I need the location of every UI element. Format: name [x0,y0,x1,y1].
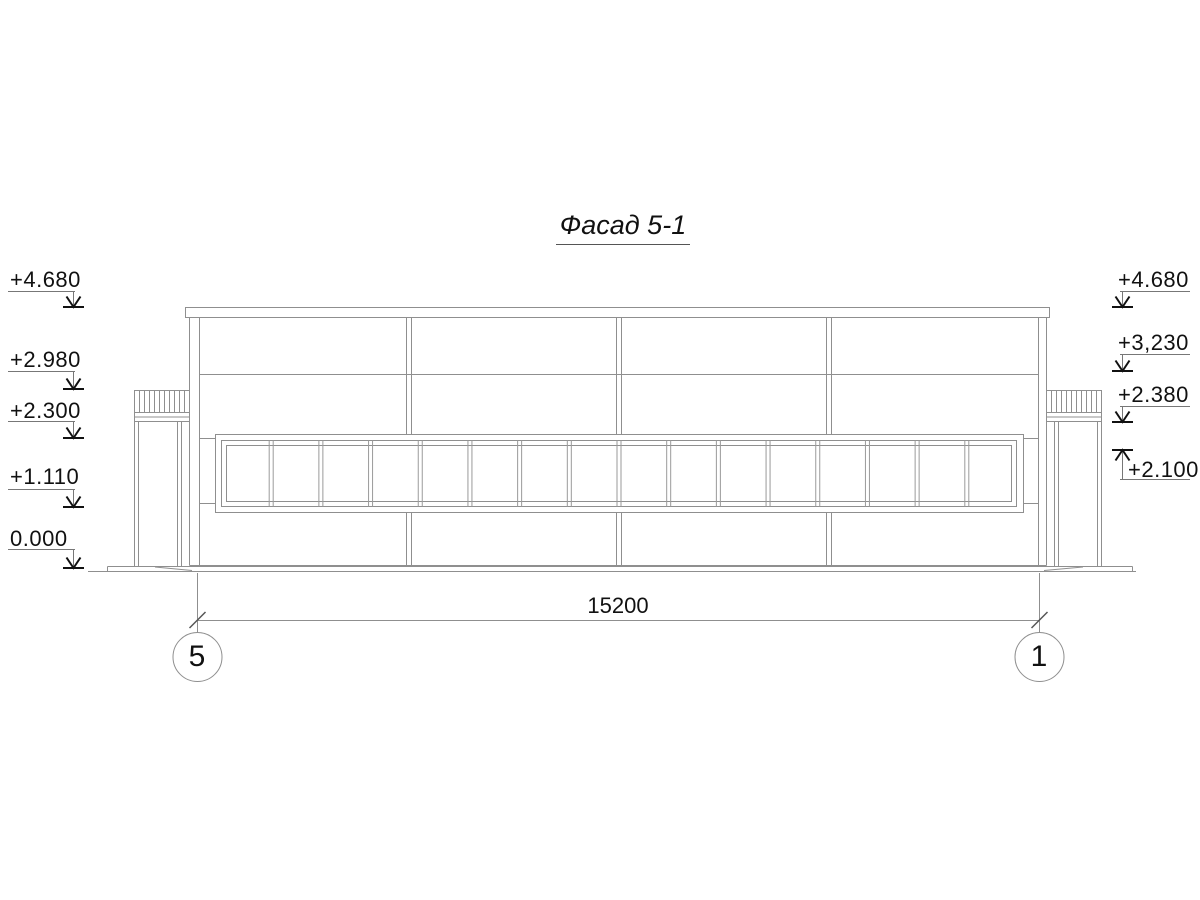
elevation-mark-right-3: +2.100 [1128,459,1198,481]
window-mullions [269,441,969,507]
dimension-total-label: 15200 [518,595,718,617]
right-pilaster-cap-hatch [1052,391,1097,413]
drawing-title: Фасад 5-1 [463,212,783,245]
elevation-mark-left-4: 0.000 [10,528,68,550]
facade-linework [0,0,1200,900]
dimension-assembly [173,573,1064,682]
elevation-mark-left-0: +4.680 [10,269,81,291]
ground-base [88,567,1136,572]
left-pilaster-cap-hatch [140,391,185,413]
elevation-mark-right-2: +2.380 [1118,384,1188,406]
left-pilaster [135,391,190,567]
elevation-mark-right-0: +4.680 [1118,269,1188,291]
facade-columns [407,318,832,566]
elevation-mark-right-1: +3,230 [1118,332,1188,354]
drawing-title-text: Фасад 5-1 [556,212,690,245]
facade-walls [190,318,1047,566]
axis-label-1: 1 [1014,641,1064,673]
axis-label-5: 5 [172,641,222,673]
elevation-mark-left-2: +2.300 [10,400,81,422]
window-band [216,435,1024,513]
facade-drawing-sheet: Фасад 5-1 +4.680 +2.980 +2.300 +1.110 0.… [0,0,1200,900]
elevation-mark-left-3: +1.110 [10,466,79,488]
right-pilaster [1047,391,1102,567]
elevation-mark-left-1: +2.980 [10,349,81,371]
parapet-band [186,308,1050,318]
